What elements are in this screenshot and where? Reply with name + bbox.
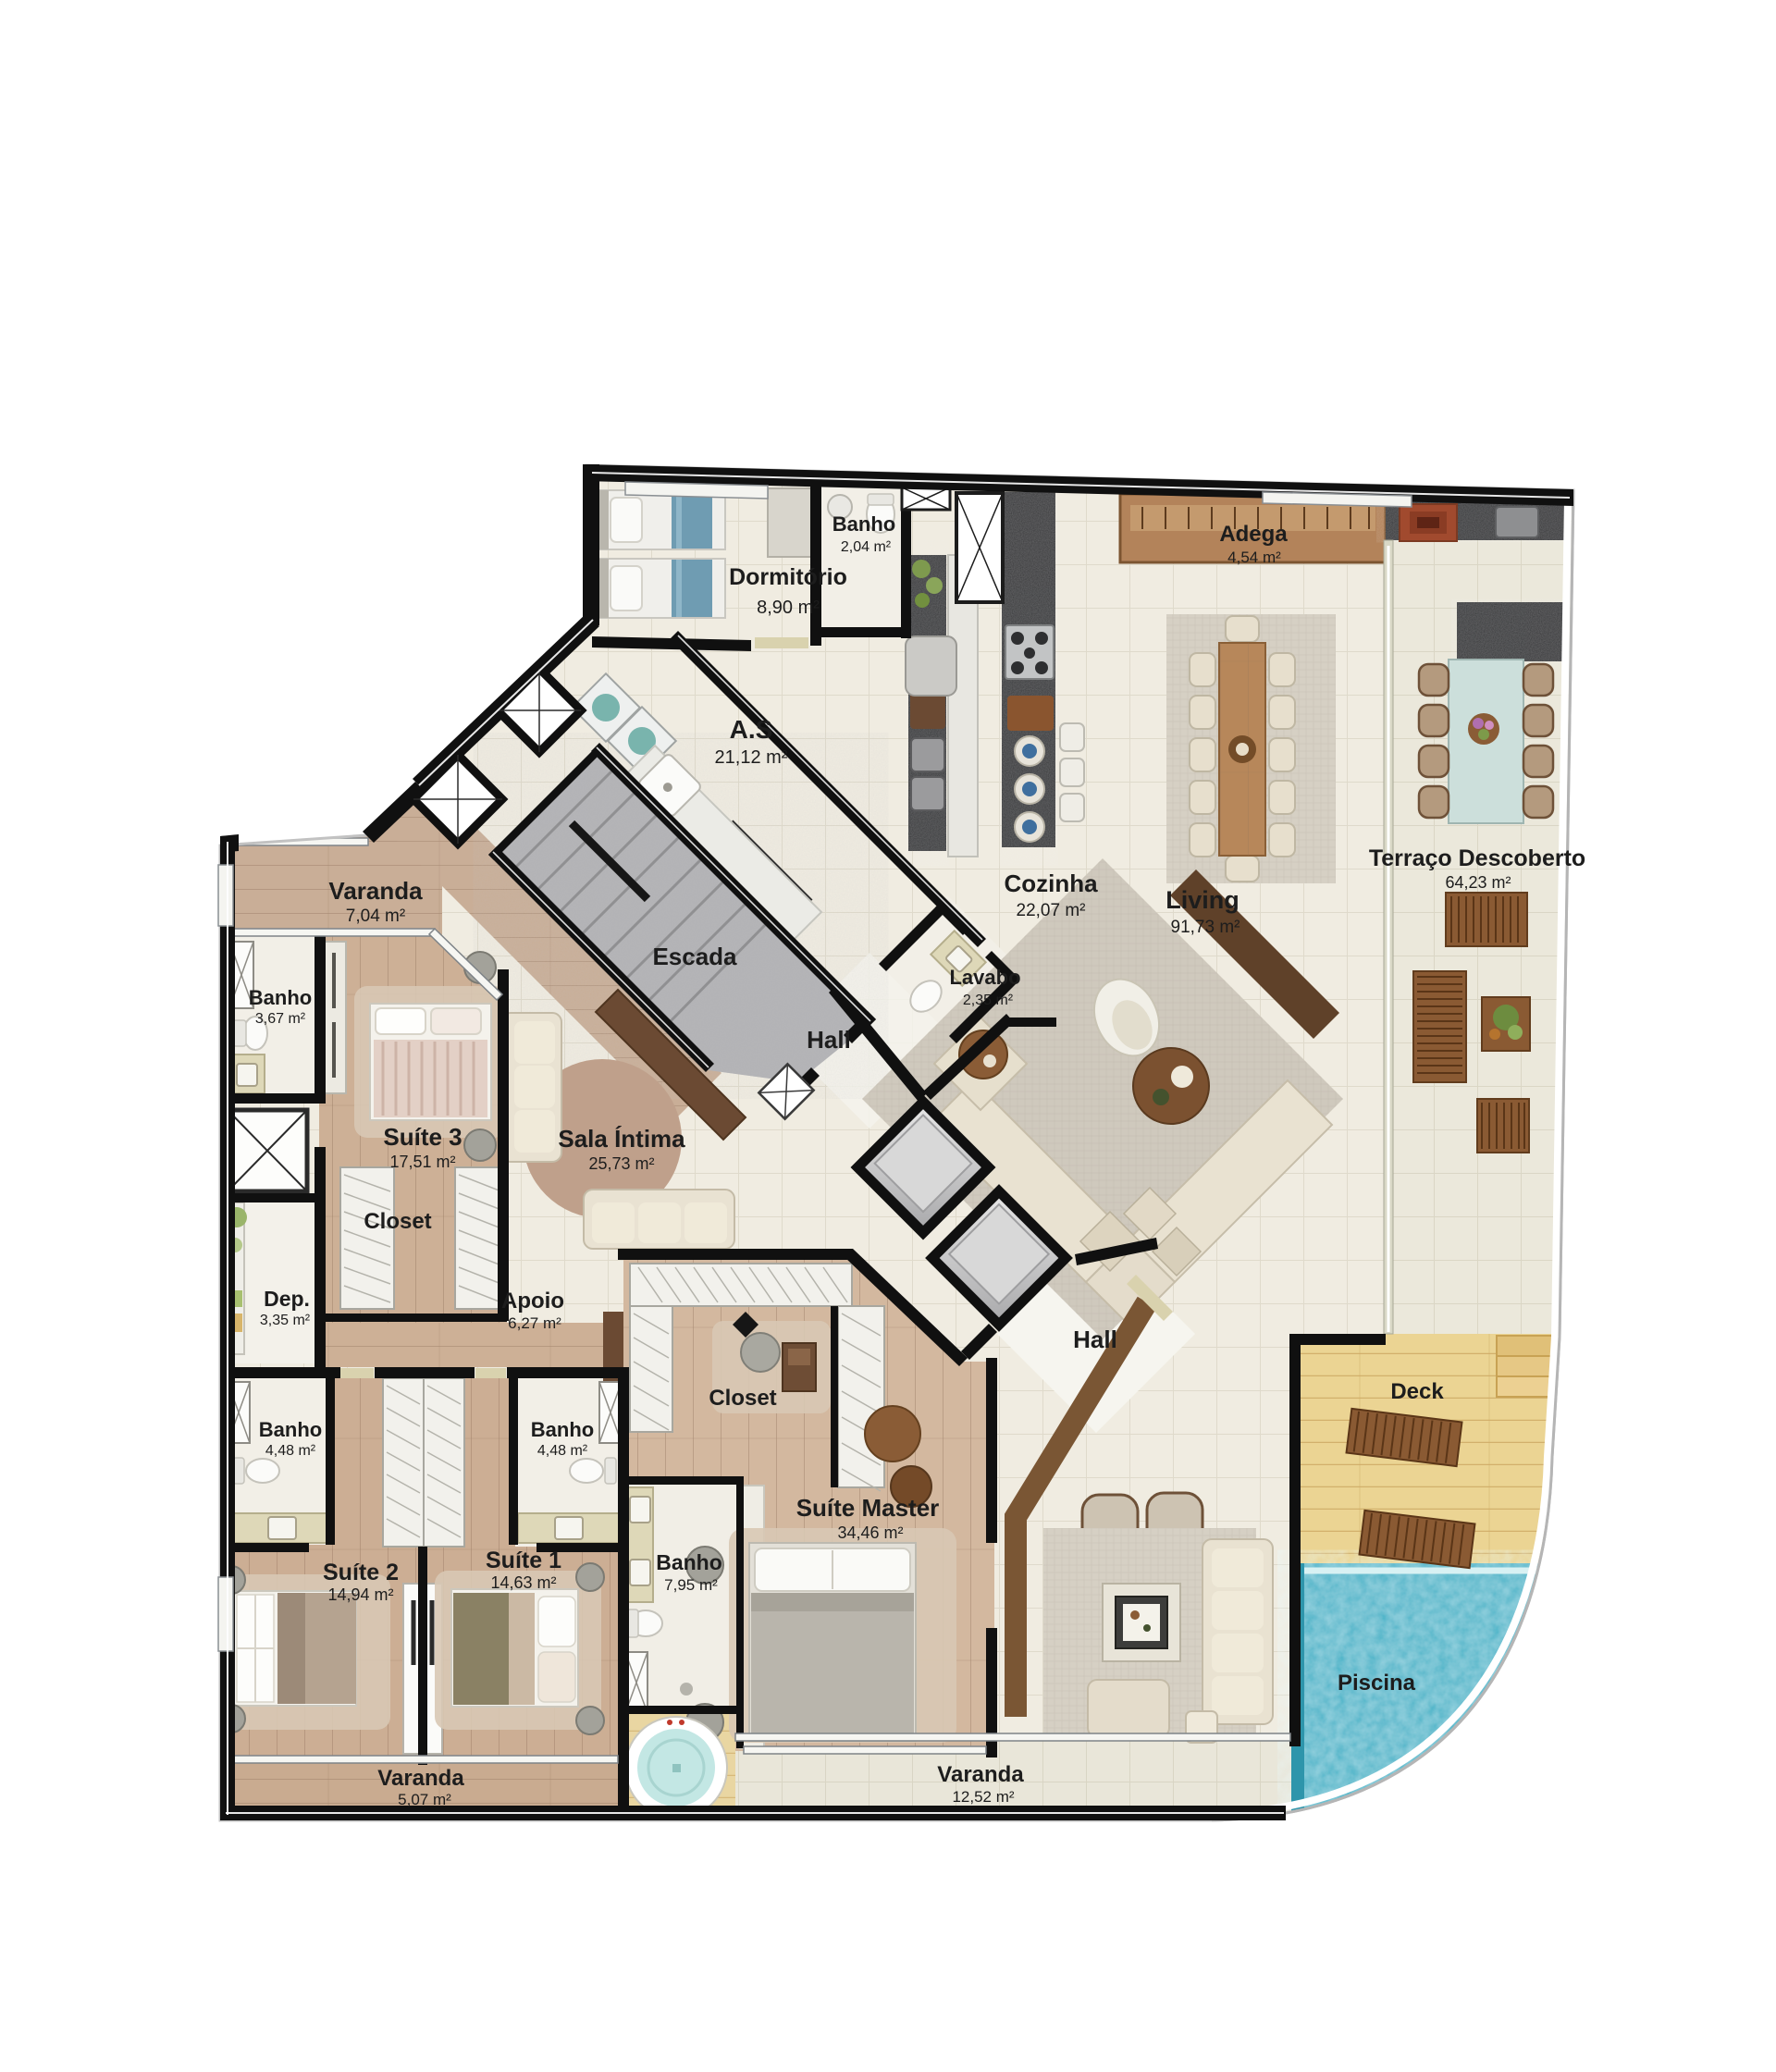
svg-text:5,07 m²: 5,07 m² [398, 1791, 451, 1808]
svg-text:4,54 m²: 4,54 m² [1227, 549, 1281, 566]
svg-text:4,48 m²: 4,48 m² [537, 1443, 588, 1459]
svg-text:4,48 m²: 4,48 m² [265, 1443, 316, 1459]
svg-text:2,04 m²: 2,04 m² [841, 539, 892, 555]
svg-text:Apoio: Apoio [501, 1289, 564, 1313]
svg-text:3,35 m²: 3,35 m² [260, 1313, 311, 1328]
svg-text:17,51 m²: 17,51 m² [389, 1153, 455, 1171]
svg-text:25,73 m²: 25,73 m² [588, 1154, 654, 1173]
svg-text:Banho: Banho [656, 1550, 722, 1574]
svg-text:Suíte 2: Suíte 2 [323, 1560, 399, 1585]
svg-text:8,90 m²: 8,90 m² [757, 598, 820, 618]
svg-text:Suíte 1: Suíte 1 [486, 1548, 561, 1573]
svg-text:22,07 m²: 22,07 m² [1017, 901, 1086, 920]
svg-text:Sala Íntima: Sala Íntima [558, 1125, 685, 1153]
svg-text:Suíte Master: Suíte Master [796, 1494, 940, 1522]
svg-text:Deck: Deck [1390, 1379, 1444, 1404]
svg-text:Varanda: Varanda [328, 877, 423, 905]
svg-text:14,94 m²: 14,94 m² [327, 1585, 393, 1604]
svg-text:Hall: Hall [807, 1026, 851, 1054]
svg-text:34,46 m²: 34,46 m² [837, 1523, 903, 1542]
svg-text:A.S: A.S [730, 715, 773, 744]
svg-text:Dep.: Dep. [264, 1287, 310, 1311]
svg-text:Terraço Descoberto: Terraço Descoberto [1369, 845, 1585, 871]
svg-text:Dormitório: Dormitório [729, 564, 847, 590]
svg-text:7,04 m²: 7,04 m² [346, 906, 405, 926]
svg-text:Banho: Banho [531, 1418, 594, 1441]
svg-text:12,52 m²: 12,52 m² [952, 1788, 1014, 1806]
svg-text:21,12 m²: 21,12 m² [715, 747, 788, 768]
svg-text:6,27 m²: 6,27 m² [508, 1314, 561, 1332]
svg-text:Hall: Hall [1073, 1326, 1117, 1353]
svg-text:7,95 m²: 7,95 m² [664, 1576, 718, 1594]
svg-text:Escada: Escada [652, 943, 737, 970]
svg-text:Banho: Banho [259, 1418, 322, 1441]
svg-text:3,67 m²: 3,67 m² [255, 1011, 306, 1027]
svg-text:14,63 m²: 14,63 m² [490, 1573, 556, 1592]
svg-text:Closet: Closet [709, 1386, 776, 1411]
svg-text:Varanda: Varanda [937, 1762, 1024, 1787]
svg-text:64,23 m²: 64,23 m² [1445, 873, 1511, 892]
svg-text:Varanda: Varanda [377, 1766, 464, 1791]
svg-text:Cozinha: Cozinha [1004, 869, 1098, 897]
svg-text:Closet: Closet [364, 1209, 431, 1234]
svg-text:Suíte 3: Suíte 3 [383, 1123, 462, 1151]
svg-text:2,35 m²: 2,35 m² [963, 993, 1014, 1008]
svg-text:Adega: Adega [1219, 522, 1288, 547]
svg-text:Banho: Banho [832, 512, 895, 536]
svg-text:91,73 m²: 91,73 m² [1171, 918, 1240, 937]
svg-text:Lavabo: Lavabo [949, 966, 1020, 989]
svg-text:Piscina: Piscina [1338, 1671, 1416, 1696]
svg-text:Banho: Banho [249, 986, 312, 1009]
svg-text:Living: Living [1165, 886, 1239, 914]
